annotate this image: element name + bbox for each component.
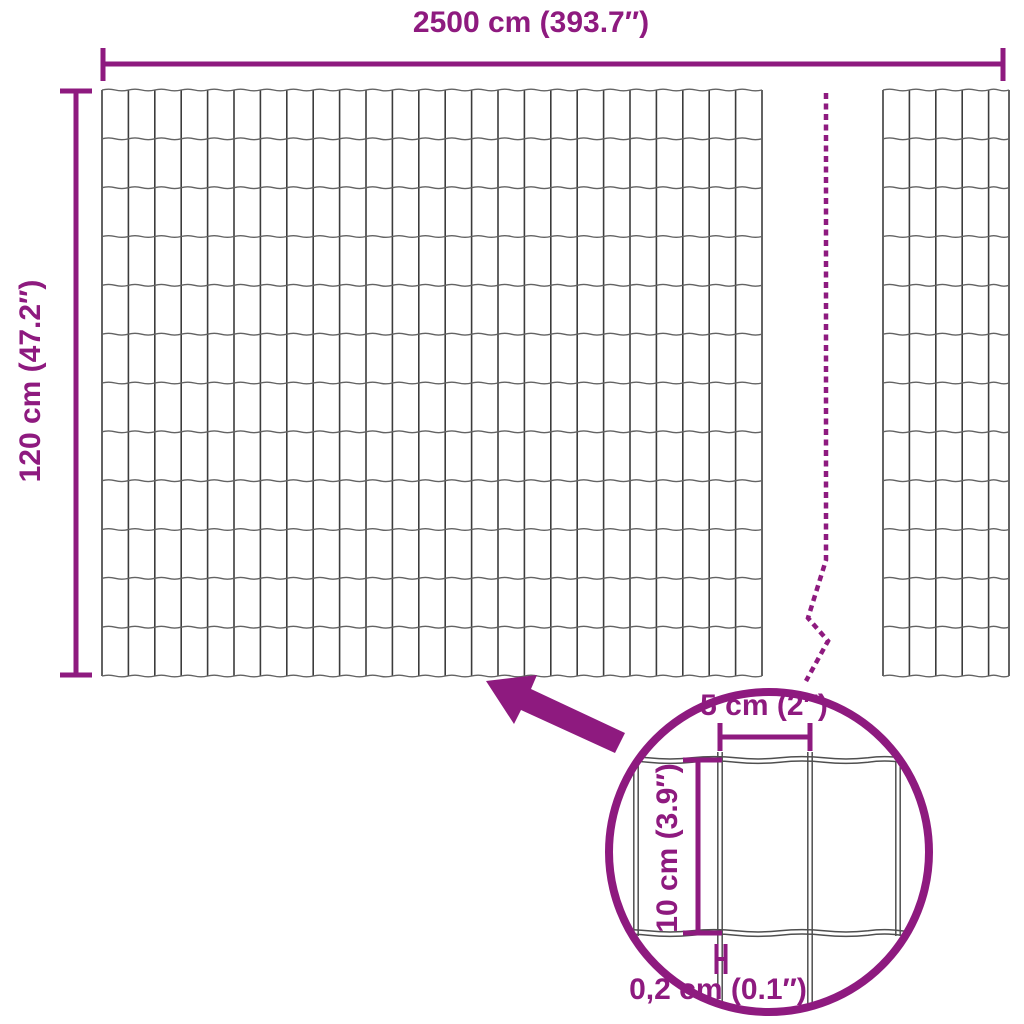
total-height-label: 120 cm (47.2″) xyxy=(14,131,48,631)
zoom-arrow xyxy=(486,675,625,753)
diagram-canvas xyxy=(0,0,1024,1024)
cell-height-label: 10 cm (3.9″) xyxy=(651,598,685,1024)
wire-thickness-label: 0,2 cm (0.1″) xyxy=(568,973,868,1007)
dimension-lines xyxy=(60,48,1003,675)
fence-mesh-vertical-wires xyxy=(102,90,1009,676)
fence-mesh-horizontal-wires xyxy=(102,89,1009,677)
total-width-label: 2500 cm (393.7″) xyxy=(281,6,781,40)
detail-dimension-lines xyxy=(683,723,810,933)
product-dimension-diagram: 2500 cm (393.7″) 120 cm (47.2″) 5 cm (2″… xyxy=(0,0,1024,1024)
wire-thickness-marker xyxy=(717,944,726,974)
break-line xyxy=(806,93,828,681)
